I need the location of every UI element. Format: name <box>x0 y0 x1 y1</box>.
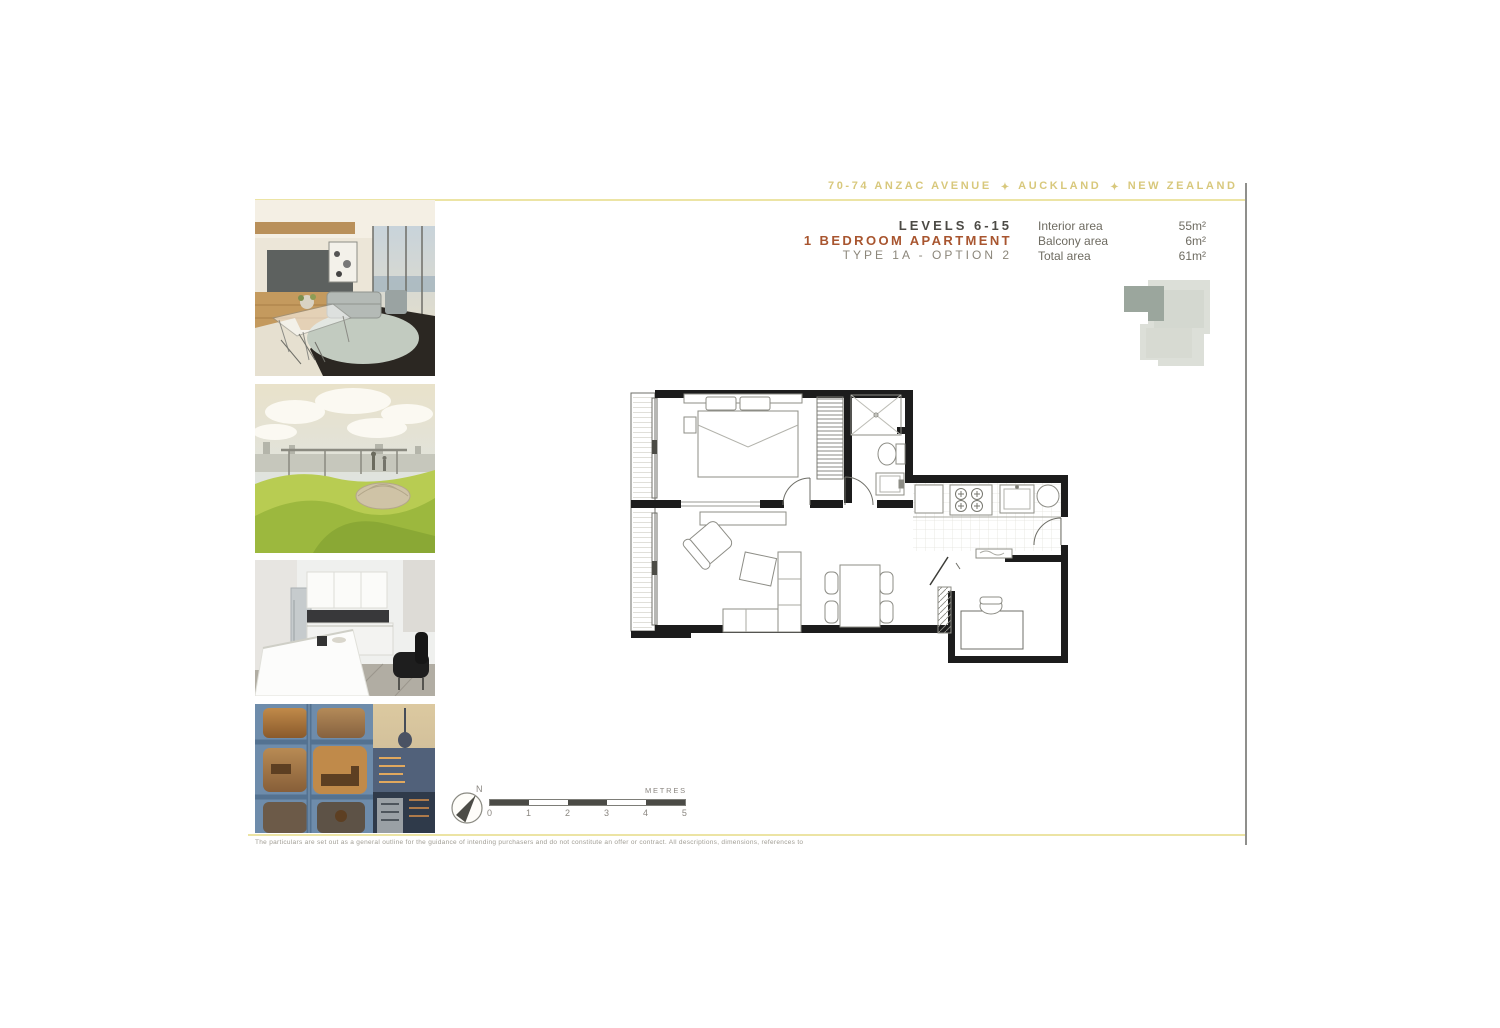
screen-wall <box>938 587 951 633</box>
header-city: AUCKLAND <box>1018 180 1101 192</box>
header-country: NEW ZEALAND <box>1128 180 1238 192</box>
scale-unit-label: METRES <box>645 786 687 795</box>
fridge <box>915 485 943 513</box>
armchair <box>682 518 736 571</box>
wood-beam <box>255 222 355 234</box>
scale-tick: 3 <box>604 808 609 818</box>
person <box>372 456 375 470</box>
living-dining <box>682 512 893 632</box>
scale-bar-segments <box>489 799 686 806</box>
kitchen-illustration <box>255 560 435 696</box>
bedroom-door <box>783 478 810 505</box>
stat-value: 55m² <box>1179 219 1206 234</box>
rooftop-illustration <box>255 384 435 553</box>
upper-cabinets <box>307 572 387 608</box>
toilet-cistern <box>896 444 905 464</box>
brochure-page: 70-74 ANZAC AVENUE✦AUCKLAND✦NEW ZEALAND … <box>0 0 1500 1028</box>
scale-tick: 1 <box>526 808 531 818</box>
bathroom <box>851 395 905 495</box>
emblem-icon: ✦ <box>1110 182 1118 193</box>
header-address: 70-74 ANZAC AVENUE <box>828 180 992 192</box>
photo-building-exterior <box>255 704 435 833</box>
floor-plan <box>628 385 1073 677</box>
stat-value: 61m² <box>1179 249 1206 264</box>
floor-plate-key-plan <box>1118 276 1214 372</box>
sofa-chaise <box>778 552 801 632</box>
living-room-illustration <box>255 200 435 376</box>
address-header: 70-74 ANZAC AVENUE✦AUCKLAND✦NEW ZEALAND <box>828 180 1170 192</box>
unit-highlight <box>1124 286 1164 312</box>
right-wall <box>403 560 435 632</box>
bedside-table <box>684 417 696 433</box>
balcony <box>631 393 657 631</box>
north-label: N <box>476 784 483 794</box>
artwork <box>329 242 357 282</box>
photo-living-room <box>255 200 435 376</box>
photo-kitchen <box>255 560 435 696</box>
unit-highlight-tab <box>1148 312 1164 321</box>
desk <box>961 611 1023 649</box>
stat-value: 6m² <box>1185 234 1206 249</box>
toilet <box>878 443 896 465</box>
stat-label: Balcony area <box>1038 234 1108 249</box>
compass-icon: N <box>446 780 490 830</box>
scale-tick: 4 <box>643 808 648 818</box>
kettle <box>317 636 327 646</box>
bench <box>976 549 1012 558</box>
scale-tick: 2 <box>565 808 570 818</box>
key-plan-graphic <box>1118 276 1214 372</box>
emblem-icon: ✦ <box>1001 182 1009 193</box>
scale-tick: 5 <box>682 808 687 818</box>
levels-title: LEVELS 6-15 <box>760 218 1012 233</box>
north-compass: N <box>446 780 490 830</box>
dome-tent <box>356 483 410 509</box>
bedroom <box>684 394 843 479</box>
bed <box>698 411 798 477</box>
title-block: LEVELS 6-15 1 BEDROOM APARTMENT TYPE 1A … <box>760 218 1012 263</box>
opening <box>681 502 760 506</box>
coffee-table <box>739 552 776 586</box>
door-leaf <box>930 557 948 585</box>
sofa-seat <box>723 609 778 632</box>
armchair <box>385 290 407 314</box>
stat-row: Balcony area 6m² <box>1038 234 1206 249</box>
pillow <box>706 397 736 410</box>
stat-row: Total area 61m² <box>1038 249 1206 264</box>
apartment-title: 1 BEDROOM APARTMENT <box>760 233 1012 248</box>
floor-plan-drawing <box>628 385 1073 677</box>
scale-bar: METRES 0 1 2 3 4 5 <box>489 786 689 822</box>
stat-label: Interior area <box>1038 219 1103 234</box>
page-edge-line <box>1245 183 1247 845</box>
stat-label: Total area <box>1038 249 1091 264</box>
scale-ticks: 0 1 2 3 4 5 <box>487 808 687 818</box>
stat-row: Interior area 55m² <box>1038 219 1206 234</box>
photo-rooftop-garden <box>255 384 435 553</box>
dining-table <box>840 565 880 627</box>
study <box>930 557 1023 649</box>
city-horizon <box>255 454 435 472</box>
laundry-unit <box>1037 485 1059 507</box>
wardrobe <box>817 397 843 479</box>
area-stats: Interior area 55m² Balcony area 6m² Tota… <box>1038 219 1206 264</box>
cooktop <box>950 485 992 515</box>
backsplash <box>307 610 389 623</box>
building-illustration <box>255 704 435 833</box>
type-subtitle: TYPE 1A - OPTION 2 <box>760 248 1012 263</box>
disclaimer-text: The particulars are set out as a general… <box>255 839 803 846</box>
pillow <box>740 397 770 410</box>
scale-tick: 0 <box>487 808 492 818</box>
footer-divider-line <box>248 834 1246 836</box>
